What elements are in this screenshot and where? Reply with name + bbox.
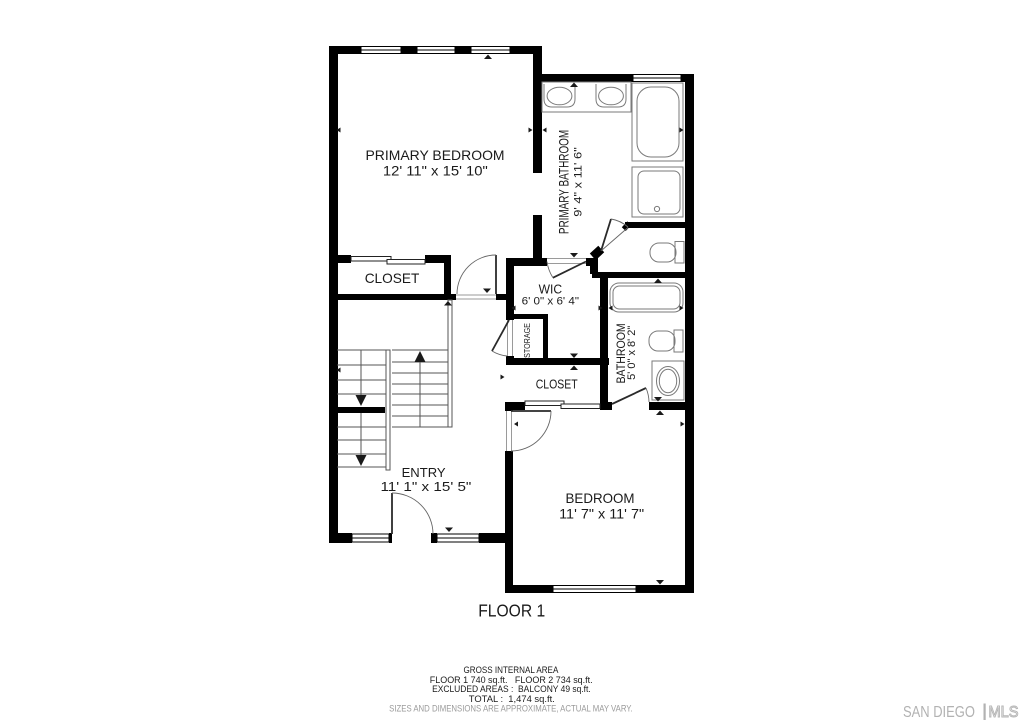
svg-text:SIZES AND DIMENSIONS ARE APPRO: SIZES AND DIMENSIONS ARE APPROXIMATE, AC… bbox=[389, 703, 632, 714]
svg-text:PRIMARY BATHROOM: PRIMARY BATHROOM bbox=[556, 130, 572, 234]
svg-text:STORAGE: STORAGE bbox=[523, 323, 532, 358]
svg-text:ENTRY: ENTRY bbox=[402, 465, 446, 480]
svg-text:6' 0" x 6' 4": 6' 0" x 6' 4" bbox=[522, 296, 579, 308]
svg-text:MLS: MLS bbox=[989, 704, 1019, 722]
svg-text:EXCLUDED AREAS : BALCONY 49 s: EXCLUDED AREAS : BALCONY 49 sq.ft. bbox=[432, 684, 591, 694]
svg-text:9' 4" x 11' 6": 9' 4" x 11' 6" bbox=[571, 147, 584, 217]
svg-text:CLOSET: CLOSET bbox=[365, 271, 420, 286]
svg-text:11' 7" x 11' 7": 11' 7" x 11' 7" bbox=[559, 506, 644, 521]
svg-text:PRIMARY BEDROOM: PRIMARY BEDROOM bbox=[365, 147, 504, 163]
svg-text:11' 1" x 15' 5": 11' 1" x 15' 5" bbox=[380, 480, 471, 495]
svg-text:12' 11" x 15' 10": 12' 11" x 15' 10" bbox=[383, 164, 488, 179]
svg-text:BEDROOM: BEDROOM bbox=[566, 491, 635, 506]
svg-text:CLOSET: CLOSET bbox=[536, 378, 578, 392]
svg-text:GROSS INTERNAL AREA: GROSS INTERNAL AREA bbox=[463, 664, 558, 675]
svg-text:FLOOR 1: FLOOR 1 bbox=[478, 601, 545, 621]
svg-text:WIC: WIC bbox=[539, 282, 563, 296]
svg-text:SAN DIEGO: SAN DIEGO bbox=[903, 704, 975, 721]
svg-text:5' 0" x 8' 2": 5' 0" x 8' 2" bbox=[626, 326, 638, 380]
